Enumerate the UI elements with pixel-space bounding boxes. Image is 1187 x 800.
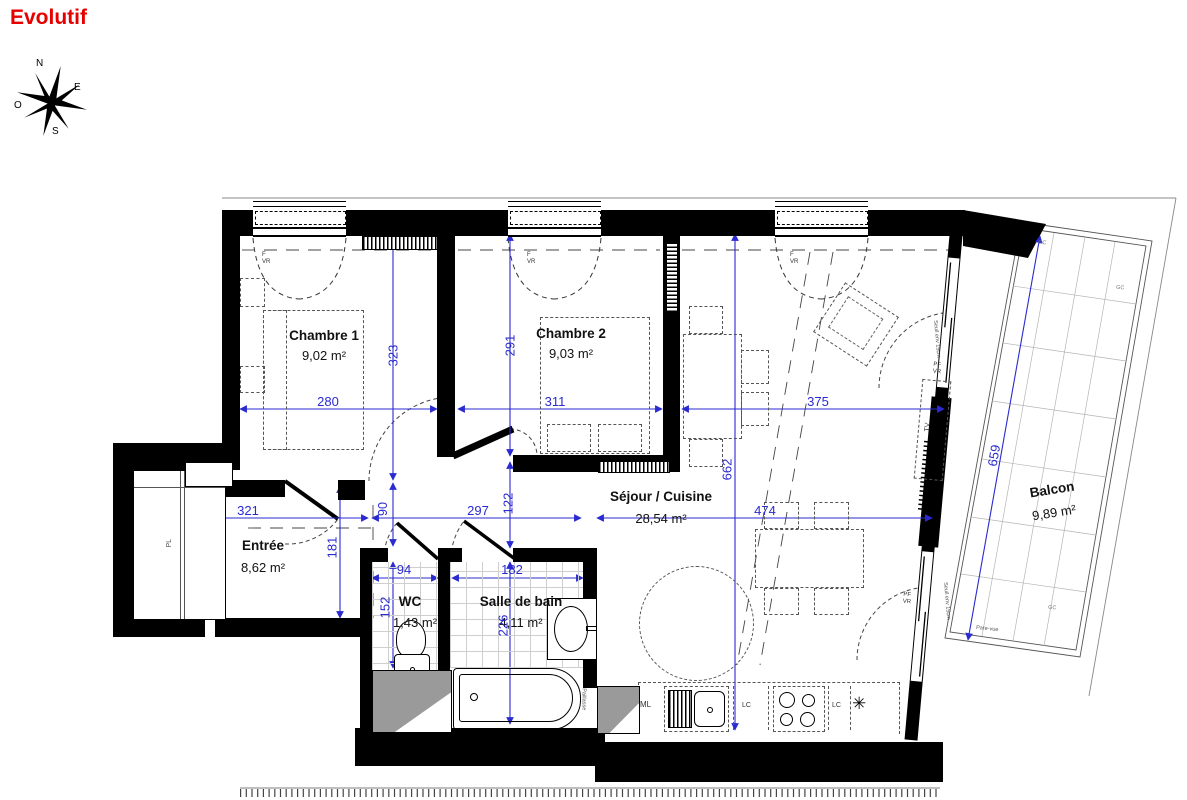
room-area-sejour: 28,54 m² <box>591 511 731 526</box>
ml-label: ML <box>640 702 651 709</box>
chair <box>764 588 799 615</box>
gc-label: GC <box>1048 605 1057 612</box>
technical-shaft-2 <box>597 686 640 734</box>
closet-placard <box>133 470 226 620</box>
window-label-f-vr: FVR <box>527 252 535 265</box>
dim-sdb-height: 226 <box>496 606 511 646</box>
bay-label-pf-vr: PFVR <box>902 592 911 606</box>
chair <box>689 306 723 334</box>
tv-label: TV <box>925 423 932 432</box>
wall-chambre1-chambre2 <box>437 210 455 457</box>
room-area-chambre2: 9,03 m² <box>521 346 621 361</box>
sink-basin <box>694 691 725 727</box>
dim-ent-width: 321 <box>228 503 268 518</box>
compass-o: O <box>14 100 22 111</box>
wall-chambre1-left <box>222 236 240 470</box>
dim-ent-height: 181 <box>325 528 340 568</box>
window-label-f-vr: FVR <box>262 252 270 265</box>
dim-sej-height: 662 <box>720 450 735 490</box>
dim-ch1-height: 323 <box>386 336 401 376</box>
wall-chambre1-bottom-stub <box>338 480 365 500</box>
chair <box>689 439 723 467</box>
fridge-star-icon: ✳ <box>852 694 866 714</box>
radiator-sejour <box>666 243 678 313</box>
window-swing-arcs <box>253 238 868 299</box>
room-area-sdb: 4,11 m² <box>471 615 571 630</box>
room-label-chambre2: Chambre 2 <box>521 326 621 341</box>
wall-wc-left <box>360 548 372 735</box>
dim-ch2-width: 311 <box>535 394 575 409</box>
nightstand-2 <box>240 366 265 393</box>
gc-label: GC <box>1116 285 1125 292</box>
chair <box>741 392 769 426</box>
chair <box>814 588 849 615</box>
wall-bottom-left <box>355 728 605 766</box>
dim-wc-height: 152 <box>378 588 393 628</box>
room-area-wc: 1,43 m² <box>385 615 445 630</box>
gc-label: GC <box>1038 240 1047 247</box>
wall-wc-sdb-pier <box>438 548 462 562</box>
counter-divider <box>828 686 829 730</box>
paillasse-label: Paillasse <box>580 688 587 710</box>
pillow-1 <box>547 424 591 452</box>
room-area-chambre1: 9,02 m² <box>274 348 374 363</box>
nightstand-1 <box>240 278 265 307</box>
radiator-chambre1 <box>362 236 438 250</box>
dim-ch1-width: 280 <box>308 394 348 409</box>
floor-plan-canvas: PL TV ✳ <box>0 0 1187 800</box>
pillow-2 <box>598 424 642 452</box>
room-label-chambre1: Chambre 1 <box>274 328 374 343</box>
compass-s: S <box>52 126 59 137</box>
dim-wc-width: 94 <box>384 562 424 577</box>
room-label-entree: Entrée <box>215 538 311 553</box>
window-label-f-vr: FVR <box>790 252 798 265</box>
compass-rose: N E S O <box>0 50 110 160</box>
radiator-chambre2 <box>598 461 670 473</box>
dim-sdb-width: 182 <box>492 562 532 577</box>
dining-table-2 <box>755 529 864 588</box>
wall-entree-left <box>113 470 133 637</box>
dim-cor-width: 297 <box>458 503 498 518</box>
chair <box>814 502 849 529</box>
dim-ch2-height: 291 <box>503 326 518 366</box>
dim-cor-height: 122 <box>501 484 516 524</box>
closet-label: PL <box>167 539 174 548</box>
bathtub <box>453 668 581 730</box>
window-chambre2 <box>508 199 601 236</box>
counter-divider <box>850 686 851 730</box>
room-label-sejour: Séjour / Cuisine <box>591 489 731 504</box>
room-label-sdb: Salle de bain <box>471 594 571 609</box>
dim-sej-width2: 474 <box>745 503 785 518</box>
wall-entree-bottom-b <box>215 618 372 637</box>
counter-divider <box>768 686 769 730</box>
dim-sej-width: 375 <box>798 394 838 409</box>
sink-drainer <box>668 690 692 728</box>
window-chambre1 <box>253 199 346 236</box>
plan-title: Evolutif <box>10 6 87 30</box>
technical-shaft-1 <box>372 670 452 733</box>
bay-label-pf-vr: PFVR <box>932 362 941 376</box>
compass-n: N <box>36 58 43 69</box>
compass-e: E <box>74 82 81 93</box>
wall-entree-bottom-a <box>113 618 205 637</box>
chair <box>741 350 769 384</box>
room-area-entree: 8,62 m² <box>215 560 311 575</box>
counter-divider <box>733 686 734 730</box>
lc-label: LC <box>742 703 751 710</box>
round-table <box>639 566 754 681</box>
wall-bottom-right <box>595 742 943 782</box>
dim-cor-gap: 90 <box>376 491 390 527</box>
cooktop <box>773 686 825 732</box>
entry-landing-box <box>185 462 233 487</box>
bottom-hatch-band <box>240 788 940 793</box>
lc-label: LC <box>832 703 841 710</box>
window-sejour <box>775 199 868 236</box>
dining-table-1 <box>683 334 742 439</box>
